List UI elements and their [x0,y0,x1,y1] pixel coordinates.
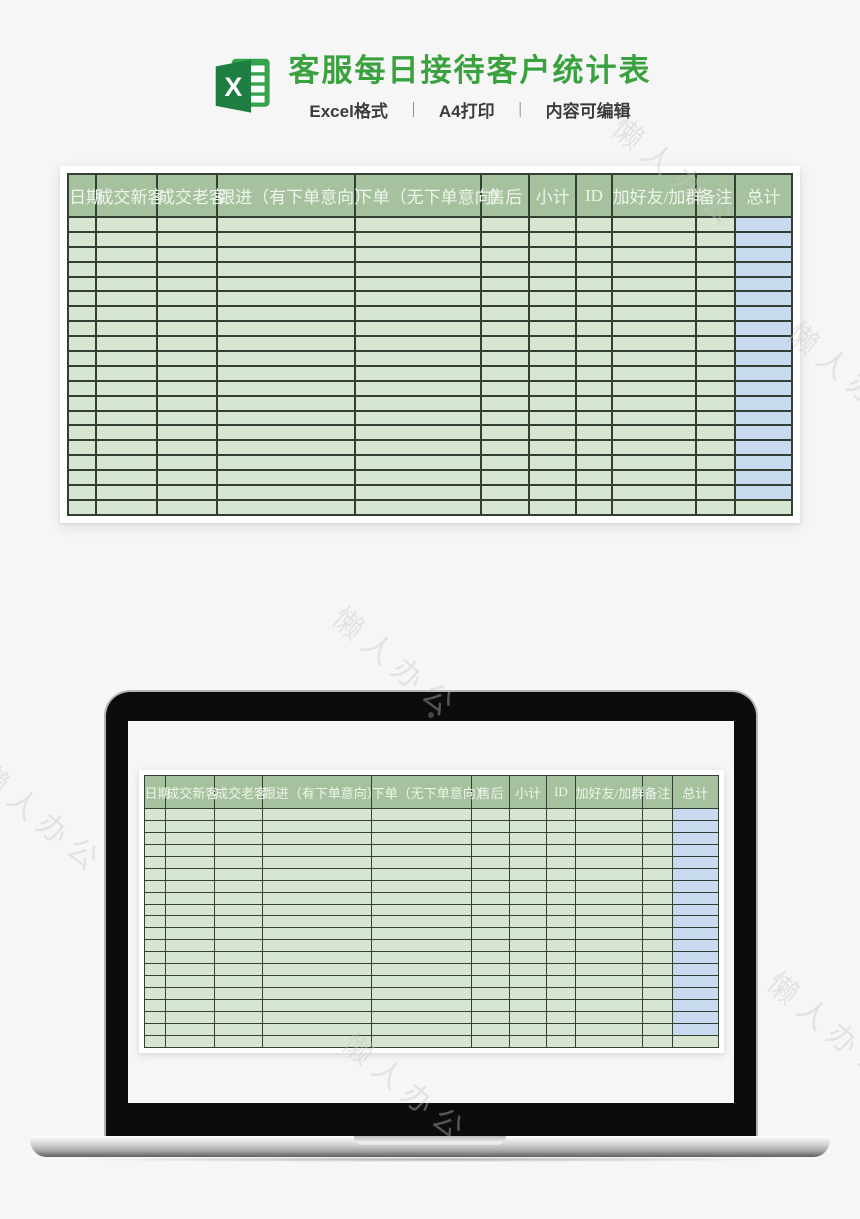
column-header: 成交老客 [157,174,217,217]
data-cell [157,351,217,366]
sheet-row [144,952,718,964]
data-cell [472,809,510,821]
total-cell [673,1023,718,1035]
data-cell [166,904,215,916]
data-cell [371,809,471,821]
data-cell [157,396,217,411]
data-cell [547,988,575,1000]
column-header: 总计 [673,776,718,809]
column-header: 跟进（有下单意向） [217,174,355,217]
data-cell [576,470,611,485]
data-cell [217,411,355,426]
data-cell [262,928,371,940]
column-header: 成交新客 [96,174,158,217]
sheet-row [68,247,792,262]
data-cell [696,411,734,426]
data-cell [166,940,215,952]
column-header: 售后 [472,776,510,809]
data-cell [481,217,529,232]
sheet-row [144,844,718,856]
data-cell [472,988,510,1000]
data-cell [547,904,575,916]
data-cell [157,247,217,262]
subtitle-print: A4打印 [439,97,495,122]
column-header: 小计 [529,174,576,217]
data-cell [642,1023,672,1035]
data-cell [576,440,611,455]
data-cell [166,856,215,868]
sheet-row [68,381,792,396]
data-cell [547,1023,575,1035]
data-cell [612,321,697,336]
data-cell [262,868,371,880]
data-cell [157,262,217,277]
data-cell [68,366,96,381]
total-cell [673,820,718,832]
data-cell [547,1035,575,1047]
data-cell [529,336,576,351]
sheet-row [68,217,792,232]
data-cell [642,988,672,1000]
data-cell [144,1011,166,1023]
data-cell [96,247,158,262]
data-cell [642,856,672,868]
data-cell [262,916,371,928]
data-cell [642,928,672,940]
data-cell [576,351,611,366]
data-cell [529,485,576,500]
data-cell [157,381,217,396]
data-cell [472,844,510,856]
data-cell [144,952,166,964]
data-cell [215,868,263,880]
data-cell [612,232,697,247]
data-cell [144,940,166,952]
data-cell [355,366,482,381]
data-cell [217,485,355,500]
data-cell [612,366,697,381]
data-cell [355,262,482,277]
total-cell [735,306,792,321]
data-cell [510,1000,547,1012]
data-cell [157,232,217,247]
sheet-row [144,1023,718,1035]
subtitle-separator: ｜ [513,99,528,120]
data-cell [642,868,672,880]
data-cell [612,277,697,292]
data-cell [510,880,547,892]
sheet-row [144,904,718,916]
data-cell [215,880,263,892]
total-cell [673,904,718,916]
data-cell [68,321,96,336]
total-cell [735,321,792,336]
total-cell [735,381,792,396]
data-cell [144,988,166,1000]
data-cell [262,892,371,904]
statistics-table-small: 日期成交新客成交老客跟进（有下单意向）下单（无下单意向）售后小计ID加好友/加群… [144,775,719,1048]
sheet-row [144,988,718,1000]
data-cell [575,1000,642,1012]
data-cell [612,411,697,426]
data-cell [262,809,371,821]
spreadsheet-preview-card-small: 日期成交新客成交老客跟进（有下单意向）下单（无下单意向）售后小计ID加好友/加群… [139,770,724,1053]
data-cell [217,396,355,411]
data-cell [215,1011,263,1023]
column-header: 小计 [510,776,547,809]
data-cell [472,976,510,988]
sheet-row [144,868,718,880]
data-cell [529,351,576,366]
data-cell [215,940,263,952]
data-cell [262,964,371,976]
column-header: 成交老客 [215,776,263,809]
watermark-text: 懒人办公 [0,750,117,884]
data-cell [612,247,697,262]
sheet-row [68,351,792,366]
data-cell [157,485,217,500]
data-cell [355,336,482,351]
column-header: 日期 [144,776,166,809]
column-header: ID [576,174,611,217]
data-cell [696,425,734,440]
data-cell [166,832,215,844]
data-cell [576,277,611,292]
sheet-row [68,455,792,470]
data-cell [215,820,263,832]
data-cell [68,411,96,426]
data-cell [355,381,482,396]
column-header: 备注 [642,776,672,809]
sheet-row [144,1035,718,1047]
data-cell [696,440,734,455]
data-cell [166,844,215,856]
data-cell [529,277,576,292]
data-cell [262,856,371,868]
data-cell [481,262,529,277]
data-cell [217,217,355,232]
data-cell [472,916,510,928]
total-cell [735,411,792,426]
data-cell [96,425,158,440]
data-cell [612,425,697,440]
sheet-row [68,277,792,292]
data-cell [547,976,575,988]
data-cell [696,470,734,485]
data-cell [217,366,355,381]
data-cell [144,820,166,832]
data-cell [510,928,547,940]
data-cell [576,247,611,262]
data-cell [575,820,642,832]
data-cell [612,485,697,500]
data-cell [472,952,510,964]
subtitle-format: Excel格式 [309,97,387,122]
data-cell [157,500,217,515]
sheet-row [144,976,718,988]
data-cell [576,500,611,515]
total-cell [735,217,792,232]
data-cell [575,844,642,856]
sheet-row [68,262,792,277]
total-cell [673,844,718,856]
data-cell [371,976,471,988]
data-cell [217,440,355,455]
total-cell [673,940,718,952]
total-cell [735,247,792,262]
sheet-row [68,411,792,426]
data-cell [612,396,697,411]
data-cell [696,500,734,515]
data-cell [547,868,575,880]
data-cell [529,470,576,485]
data-cell [576,336,611,351]
data-cell [547,1000,575,1012]
data-cell [215,1000,263,1012]
data-cell [215,928,263,940]
data-cell [96,411,158,426]
data-cell [547,928,575,940]
total-cell [673,976,718,988]
data-cell [612,217,697,232]
sheet-row [144,964,718,976]
data-cell [696,336,734,351]
column-header: 成交新客 [166,776,215,809]
data-cell [215,856,263,868]
data-cell [96,455,158,470]
data-cell [144,892,166,904]
data-cell [96,440,158,455]
data-cell [529,232,576,247]
data-cell [68,291,96,306]
data-cell [481,277,529,292]
data-cell [215,832,263,844]
data-cell [575,868,642,880]
data-cell [157,425,217,440]
data-cell [529,411,576,426]
data-cell [510,1035,547,1047]
data-cell [612,440,697,455]
data-cell [68,485,96,500]
data-cell [696,247,734,262]
data-cell [696,366,734,381]
data-cell [472,1000,510,1012]
sheet-row [68,321,792,336]
data-cell [355,485,482,500]
data-cell [642,916,672,928]
data-cell [696,262,734,277]
total-cell [673,1000,718,1012]
data-cell [696,277,734,292]
data-cell [157,217,217,232]
data-cell [217,232,355,247]
data-cell [217,247,355,262]
data-cell [642,940,672,952]
data-cell [166,952,215,964]
data-cell [696,217,734,232]
svg-text:X: X [224,72,242,102]
data-cell [547,916,575,928]
total-cell [673,856,718,868]
data-cell [68,440,96,455]
data-cell [575,928,642,940]
data-cell [642,964,672,976]
data-cell [355,217,482,232]
data-cell [371,868,471,880]
data-cell [215,964,263,976]
data-cell [166,892,215,904]
data-cell [642,832,672,844]
data-cell [547,820,575,832]
data-cell [735,500,792,515]
sheet-row [68,291,792,306]
data-cell [529,500,576,515]
laptop-base [30,1136,830,1157]
camera-icon [428,712,434,718]
data-cell [673,1035,718,1047]
data-cell [68,470,96,485]
data-cell [96,321,158,336]
data-cell [166,1011,215,1023]
data-cell [371,964,471,976]
data-cell [472,1011,510,1023]
data-cell [68,262,96,277]
data-cell [371,880,471,892]
data-cell [510,1011,547,1023]
data-cell [217,262,355,277]
data-cell [612,262,697,277]
total-cell [735,262,792,277]
data-cell [262,904,371,916]
data-cell [262,976,371,988]
data-cell [68,396,96,411]
data-cell [215,952,263,964]
data-cell [371,1035,471,1047]
data-cell [68,381,96,396]
data-cell [472,928,510,940]
data-cell [642,820,672,832]
data-cell [481,485,529,500]
data-cell [166,809,215,821]
data-cell [215,1023,263,1035]
total-cell [735,351,792,366]
total-cell [673,916,718,928]
page-title: 客服每日接待客户统计表 [289,52,652,91]
data-cell [157,291,217,306]
excel-logo-icon: X [209,53,273,120]
data-cell [355,455,482,470]
data-cell [144,832,166,844]
data-cell [510,988,547,1000]
data-cell [157,366,217,381]
page-subtitle: Excel格式 ｜ A4打印 ｜ 内容可编辑 [309,97,630,122]
column-header: ID [547,776,575,809]
data-cell [371,844,471,856]
data-cell [529,396,576,411]
data-cell [575,892,642,904]
data-cell [166,928,215,940]
data-cell [576,381,611,396]
data-cell [510,868,547,880]
data-cell [217,425,355,440]
data-cell [262,820,371,832]
data-cell [575,904,642,916]
data-cell [510,832,547,844]
data-cell [481,500,529,515]
data-cell [355,232,482,247]
data-cell [166,1035,215,1047]
total-cell [673,880,718,892]
data-cell [371,952,471,964]
data-cell [215,844,263,856]
data-cell [166,880,215,892]
total-cell [735,455,792,470]
column-header: 加好友/加群 [575,776,642,809]
data-cell [510,820,547,832]
subtitle-separator: ｜ [406,99,421,120]
data-cell [547,1011,575,1023]
data-cell [510,844,547,856]
data-cell [157,411,217,426]
data-cell [262,988,371,1000]
data-cell [575,832,642,844]
total-cell [735,485,792,500]
data-cell [355,470,482,485]
data-cell [166,988,215,1000]
data-cell [696,291,734,306]
data-cell [529,306,576,321]
data-cell [96,396,158,411]
data-cell [529,321,576,336]
data-cell [529,247,576,262]
data-cell [481,470,529,485]
data-cell [547,940,575,952]
sheet-row [144,928,718,940]
data-cell [472,820,510,832]
data-cell [215,809,263,821]
data-cell [510,892,547,904]
data-cell [262,1023,371,1035]
data-cell [215,904,263,916]
data-cell [96,217,158,232]
data-cell [481,440,529,455]
data-cell [529,366,576,381]
data-cell [144,1023,166,1035]
data-cell [547,832,575,844]
data-cell [612,336,697,351]
data-cell [215,916,263,928]
sheet-row [68,425,792,440]
data-cell [576,291,611,306]
data-cell [642,1000,672,1012]
data-cell [68,455,96,470]
data-cell [575,1011,642,1023]
data-cell [157,470,217,485]
total-cell [735,440,792,455]
data-cell [217,351,355,366]
data-cell [612,470,697,485]
data-cell [612,351,697,366]
sheet-row [68,485,792,500]
sheet-row [68,306,792,321]
data-cell [355,306,482,321]
statistics-table: 日期成交新客成交老客跟进（有下单意向）下单（无下单意向）售后小计ID加好友/加群… [67,173,793,516]
data-cell [612,306,697,321]
data-cell [96,277,158,292]
data-cell [355,351,482,366]
data-cell [696,321,734,336]
total-cell [673,988,718,1000]
